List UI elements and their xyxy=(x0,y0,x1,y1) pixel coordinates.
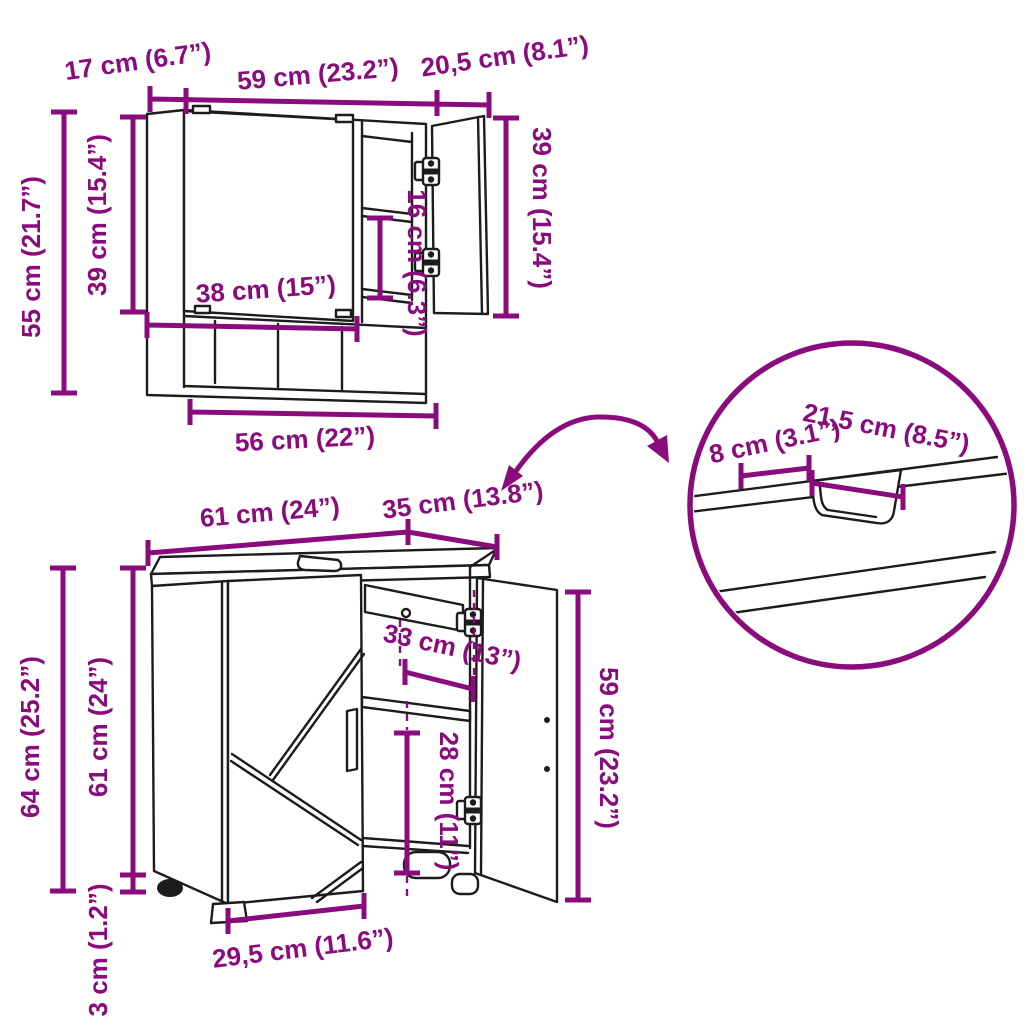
sink-door-open xyxy=(475,578,557,902)
mirror-top-fitting xyxy=(193,106,210,113)
sink-door-handle xyxy=(347,709,357,771)
dim-label-mirror-height-door: 39 cm (15.4”) xyxy=(527,127,557,289)
dim-label-sink-height-feet: 3 cm (1.2”) xyxy=(83,884,113,1017)
dim-label-sink-door-height: 59 cm (23.2”) xyxy=(594,667,624,829)
sink-foot xyxy=(452,874,478,894)
sink-door-hole xyxy=(544,766,550,772)
sink-cabinet-drawing xyxy=(151,548,557,923)
sink-foot xyxy=(157,879,183,897)
sink-side-panel xyxy=(152,581,228,904)
mirror-bottom-fitting xyxy=(336,310,351,317)
dim-label-sink-opening-height: 28 cm (11”) xyxy=(434,732,464,871)
dim-label-mirror-height-total: 55 cm (21.7”) xyxy=(16,176,46,338)
dim-label-mirror-shelf-spacing: 16 cm (6.3”) xyxy=(402,189,432,336)
dim-label-mirror-height-body: 39 cm (15.4”) xyxy=(82,134,112,296)
sink-door-hole xyxy=(544,717,550,723)
dim-label-sink-height-total: 64 cm (25.2”) xyxy=(15,656,45,818)
hinge-icon xyxy=(457,609,481,636)
diagram-canvas: 17 cm (6.7”) 59 cm (23.2”) 20,5 cm (8.1”… xyxy=(0,0,1024,1024)
sink-rail-hole xyxy=(402,609,410,617)
dimension-diagram: 17 cm (6.7”) 59 cm (23.2”) 20,5 cm (8.1”… xyxy=(0,0,1024,1024)
dim-label-sink-height-body: 61 cm (24”) xyxy=(83,657,113,797)
mirror-top-fitting xyxy=(336,115,353,122)
hinge-icon xyxy=(415,158,439,185)
